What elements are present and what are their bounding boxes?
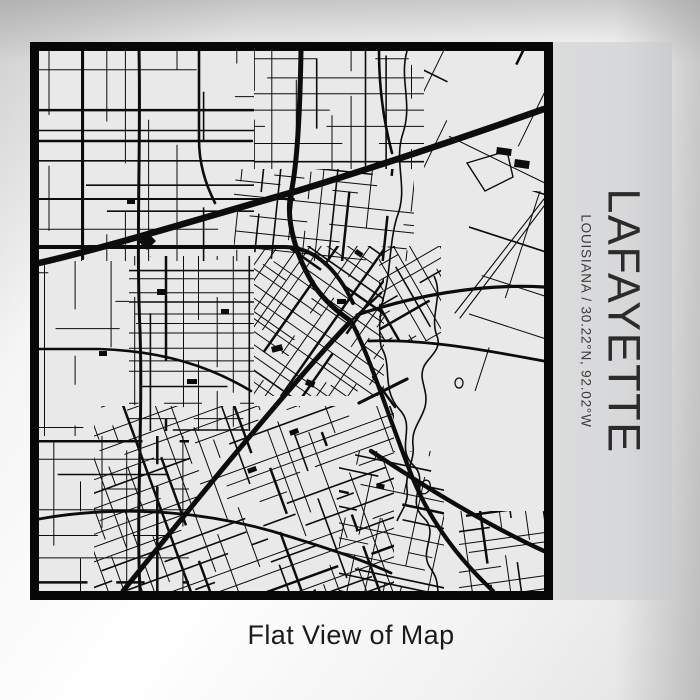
page-background: { "print": { "title": "LAFAYETTE", "subt… <box>0 0 700 700</box>
label-panel: LAFAYETTE LOUISIANA / 30.22°N, 92.02°W <box>553 42 672 600</box>
street-map <box>39 51 544 591</box>
city-title: LAFAYETTE <box>600 188 647 453</box>
map-print: LAFAYETTE LOUISIANA / 30.22°N, 92.02°W <box>30 42 672 600</box>
map-frame <box>30 42 553 600</box>
rotated-label: LAFAYETTE LOUISIANA / 30.22°N, 92.02°W <box>578 188 647 453</box>
city-subtitle: LOUISIANA / 30.22°N, 92.02°W <box>578 188 593 453</box>
caption: Flat View of Map <box>30 620 672 651</box>
